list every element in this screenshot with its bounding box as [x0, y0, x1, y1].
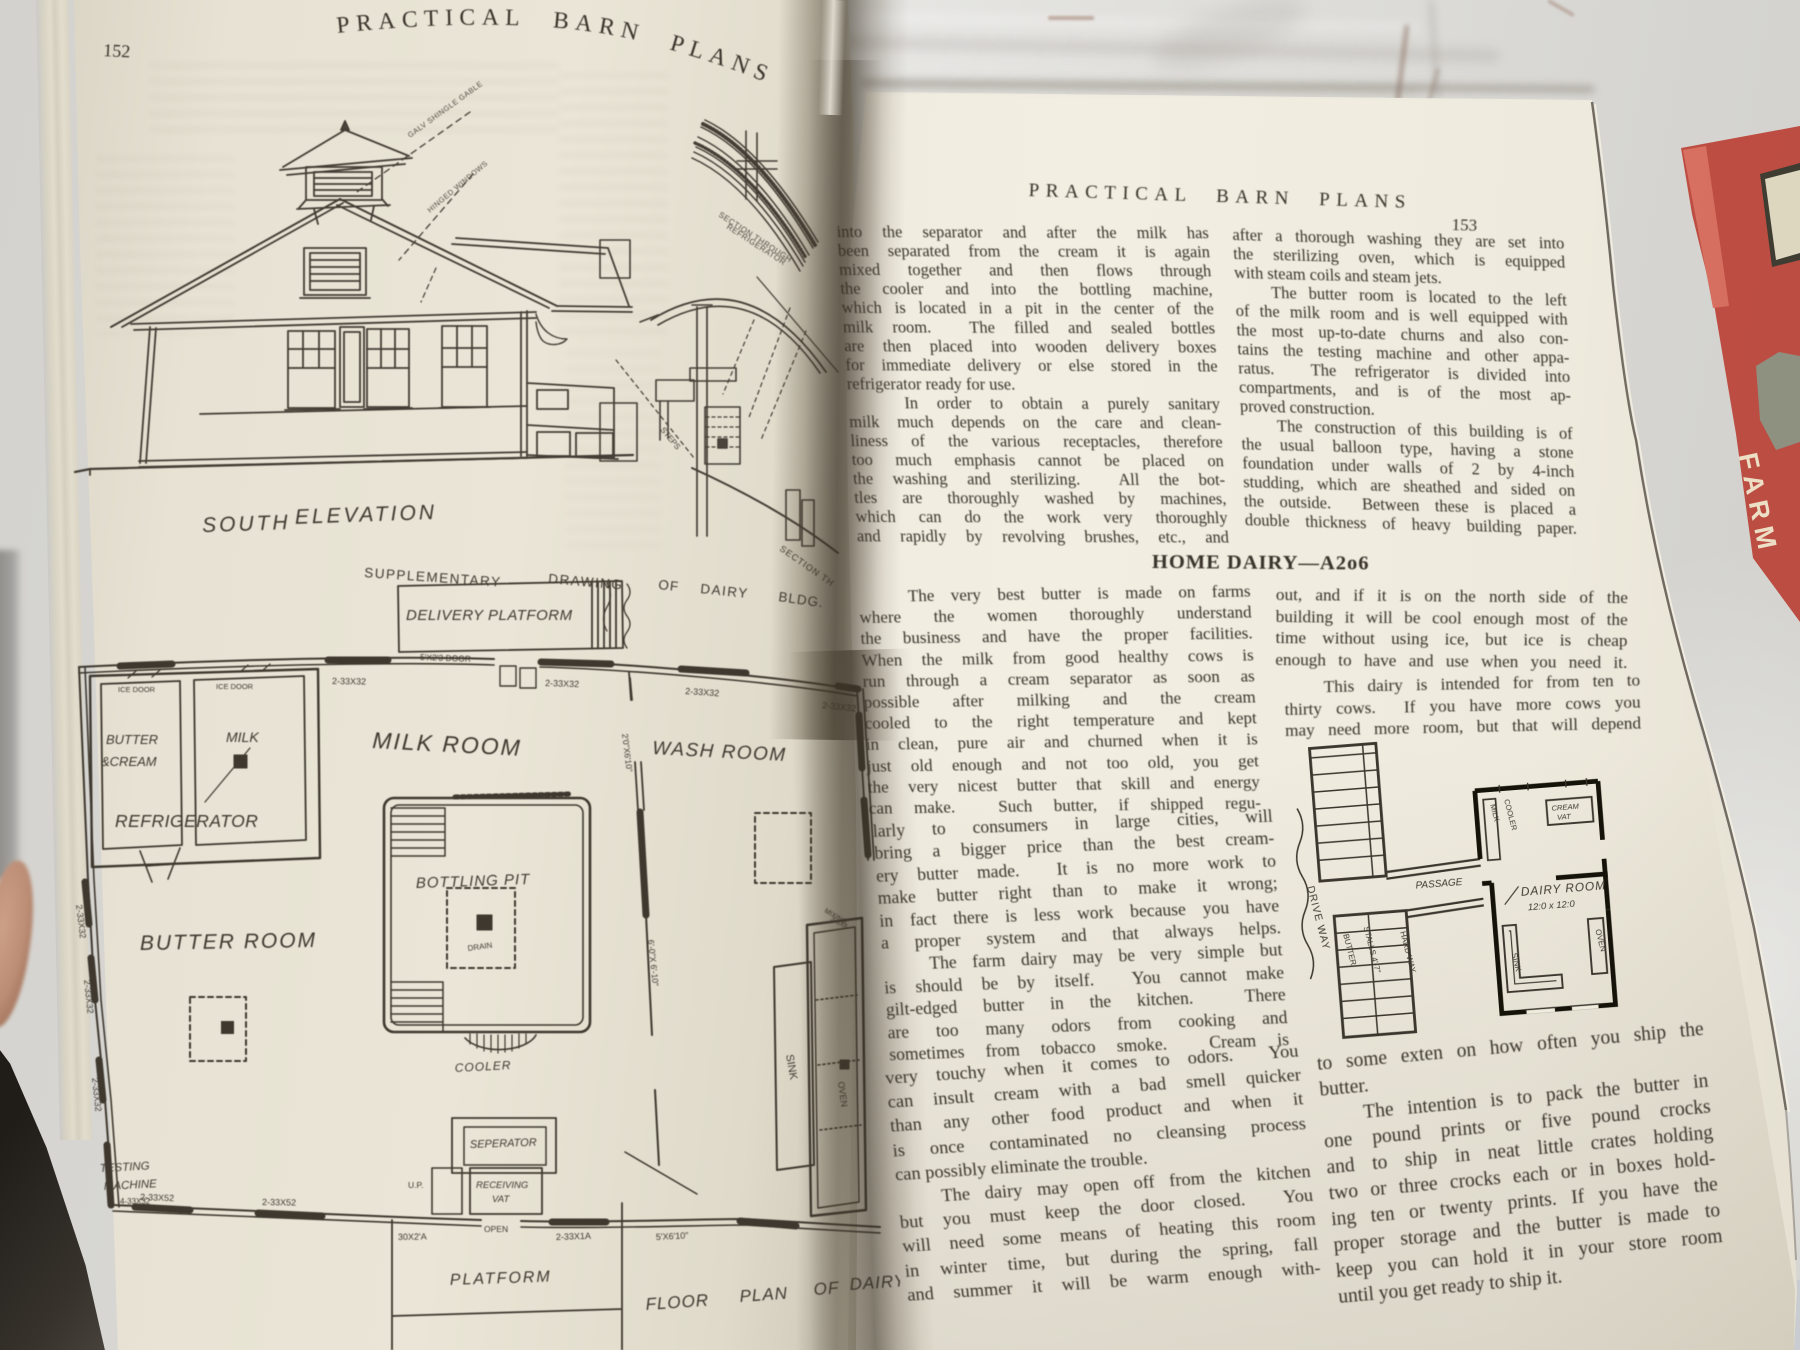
svg-text:COOLER: COOLER — [454, 1058, 511, 1075]
svg-text:ELEVATION: ELEVATION — [294, 501, 437, 529]
svg-text:2-33X52: 2-33X52 — [262, 1197, 296, 1208]
svg-text:MILK ROOM: MILK ROOM — [372, 727, 523, 761]
svg-text:DRAIN: DRAIN — [467, 941, 493, 953]
svg-text:5'X6'10": 5'X6'10" — [656, 1230, 689, 1242]
svg-text:PASSAGE: PASSAGE — [1415, 877, 1463, 892]
svg-text:&CREAM: &CREAM — [101, 754, 157, 769]
svg-text:2-33X1A: 2-33X1A — [556, 1231, 591, 1242]
svg-text:DELIVERY PLATFORM: DELIVERY PLATFORM — [406, 607, 573, 624]
svg-text:TESTING: TESTING — [100, 1160, 150, 1175]
svg-text:PLAN: PLAN — [739, 1284, 789, 1306]
svg-text:RECEIVING: RECEIVING — [476, 1180, 528, 1191]
svg-text:HINGED WINDOWS: HINGED WINDOWS — [426, 159, 490, 215]
svg-text:152: 152 — [103, 40, 131, 61]
svg-text:DAIRY ROOM: DAIRY ROOM — [1520, 878, 1606, 899]
svg-text:2-33X32: 2-33X32 — [545, 678, 579, 689]
svg-text:2'0"X6'10": 2'0"X6'10" — [620, 733, 635, 773]
svg-text:U.P.: U.P. — [408, 1180, 423, 1190]
svg-text:ICE DOOR: ICE DOOR — [216, 682, 254, 691]
svg-text:VAT: VAT — [1557, 811, 1573, 821]
svg-text:2-33X32: 2-33X32 — [685, 686, 720, 698]
svg-text:FLOOR: FLOOR — [645, 1291, 710, 1314]
svg-text:PRACTICAL BARN PLANS: PRACTICAL BARN PLANS — [335, 5, 777, 90]
svg-text:GALV SHINGLE GABLE: GALV SHINGLE GABLE — [406, 79, 485, 140]
svg-text:SOUTH: SOUTH — [202, 511, 291, 537]
svg-text:BUTTER ROOM: BUTTER ROOM — [140, 929, 318, 955]
svg-text:VAT: VAT — [492, 1194, 510, 1205]
svg-text:COOLER: COOLER — [1502, 798, 1519, 832]
svg-text:HARD WAY: HARD WAY — [1398, 930, 1418, 974]
svg-text:MILK: MILK — [1488, 803, 1501, 822]
svg-text:REFRIGERATOR: REFRIGERATOR — [115, 811, 258, 831]
svg-text:OVEN: OVEN — [1593, 928, 1607, 953]
svg-text:2-33X32: 2-33X32 — [90, 1077, 104, 1112]
svg-text:CREAM: CREAM — [1551, 801, 1580, 812]
svg-text:30X2'A: 30X2'A — [398, 1231, 427, 1242]
svg-text:DAIRY: DAIRY — [700, 581, 750, 601]
svg-text:ICE DOOR: ICE DOOR — [118, 685, 156, 694]
svg-text:WASH ROOM: WASH ROOM — [652, 738, 787, 766]
svg-text:MACHINE: MACHINE — [104, 1178, 158, 1193]
svg-text:2-33X32: 2-33X32 — [82, 979, 96, 1014]
svg-text:4-33X32: 4-33X32 — [120, 1197, 151, 1206]
svg-text:SEPERATOR: SEPERATOR — [470, 1137, 537, 1151]
svg-text:SINK: SINK — [1510, 952, 1524, 973]
svg-text:BUTTER: BUTTER — [106, 732, 158, 747]
svg-text:STALLS 4'-7": STALLS 4'-7" — [1362, 925, 1383, 974]
svg-text:OF: OF — [658, 577, 680, 594]
svg-text:MILK: MILK — [226, 729, 259, 745]
svg-text:PLATFORM: PLATFORM — [450, 1268, 552, 1289]
svg-text:DRIVE WAY: DRIVE WAY — [1304, 885, 1331, 952]
svg-text:12:0 x 12:0: 12:0 x 12:0 — [1527, 899, 1575, 914]
svg-text:2-33X32: 2-33X32 — [332, 676, 366, 687]
svg-text:OPEN: OPEN — [484, 1224, 508, 1234]
svg-text:SINK: SINK — [783, 1053, 799, 1081]
